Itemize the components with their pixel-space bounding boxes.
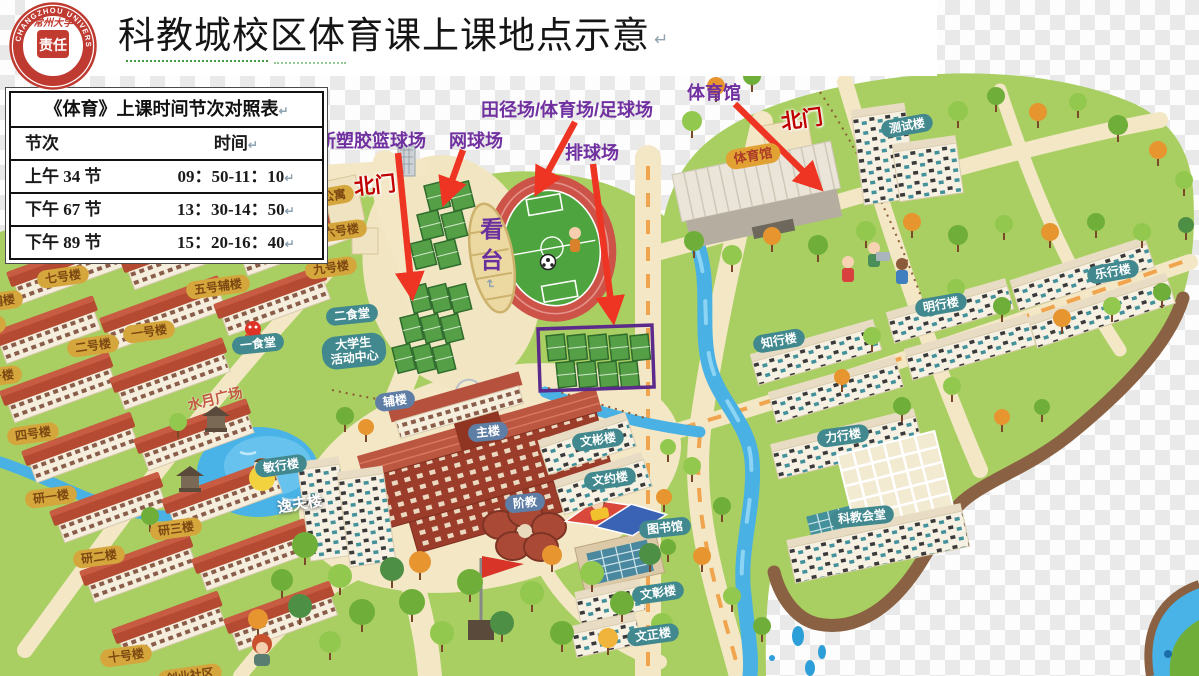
period-cell: 下午 89 节: [11, 227, 150, 258]
time-cell: 15：20-16：40↵: [150, 227, 322, 258]
paragraph-mark: ↵: [278, 104, 288, 118]
page-title: 科教城校区体育课上课地点示意↵: [118, 10, 669, 64]
spellcheck-underline: [126, 60, 268, 62]
schedule-row: 下午 89 节 15：20-16：40↵: [11, 227, 322, 258]
schedule-title: 《体育》上课时间节次对照表↵: [11, 93, 322, 128]
period-cell: 上午 34 节: [11, 161, 150, 192]
schedule-row: 下午 67 节 13：30-14：50↵: [11, 194, 322, 227]
callout-tennis-courts: 网球场: [449, 127, 503, 153]
callout-volleyball-courts: 排球场: [565, 139, 619, 165]
corner-water: [1148, 584, 1199, 676]
schedule-row: 上午 34 节 09：50-11：10↵: [11, 161, 322, 194]
pe-schedule-table: 《体育》上课时间节次对照表↵ 节次 时间↵ 上午 34 节 09：50-11：1…: [5, 87, 328, 264]
logo-year: ·1978·: [42, 62, 64, 71]
spellcheck-underline-2: [274, 62, 346, 64]
slide-page: 科教城校区体育课上课地点示意↵ CHANGZHOU UNIVERSITY 常州大…: [0, 0, 1199, 676]
callout-gymnasium: 体育馆: [687, 79, 741, 105]
time-cell: 13：30-14：50↵: [150, 194, 322, 225]
column-header-period: 节次: [11, 128, 150, 159]
column-header-time: 时间↵: [150, 128, 322, 159]
callout-new-basketball-courts: 新塑胶篮球场: [318, 127, 426, 153]
callout-track-stadium-football-field: 田径场/体育场/足球场: [481, 96, 653, 122]
badge-grandstand: 看台↵: [475, 217, 503, 297]
logo-university-cn: 常州大学: [33, 17, 75, 29]
period-cell: 下午 67 节: [11, 194, 150, 225]
paragraph-mark: ↵: [654, 30, 669, 49]
schedule-header-row: 节次 时间↵: [11, 128, 322, 161]
time-cell: 09：50-11：10↵: [150, 161, 322, 192]
university-logo: CHANGZHOU UNIVERSITY 常州大学 责任 ·1978·: [9, 2, 97, 90]
title-text: 科教城校区体育课上课地点示意: [118, 16, 650, 57]
logo-seal: 责任: [39, 37, 67, 54]
